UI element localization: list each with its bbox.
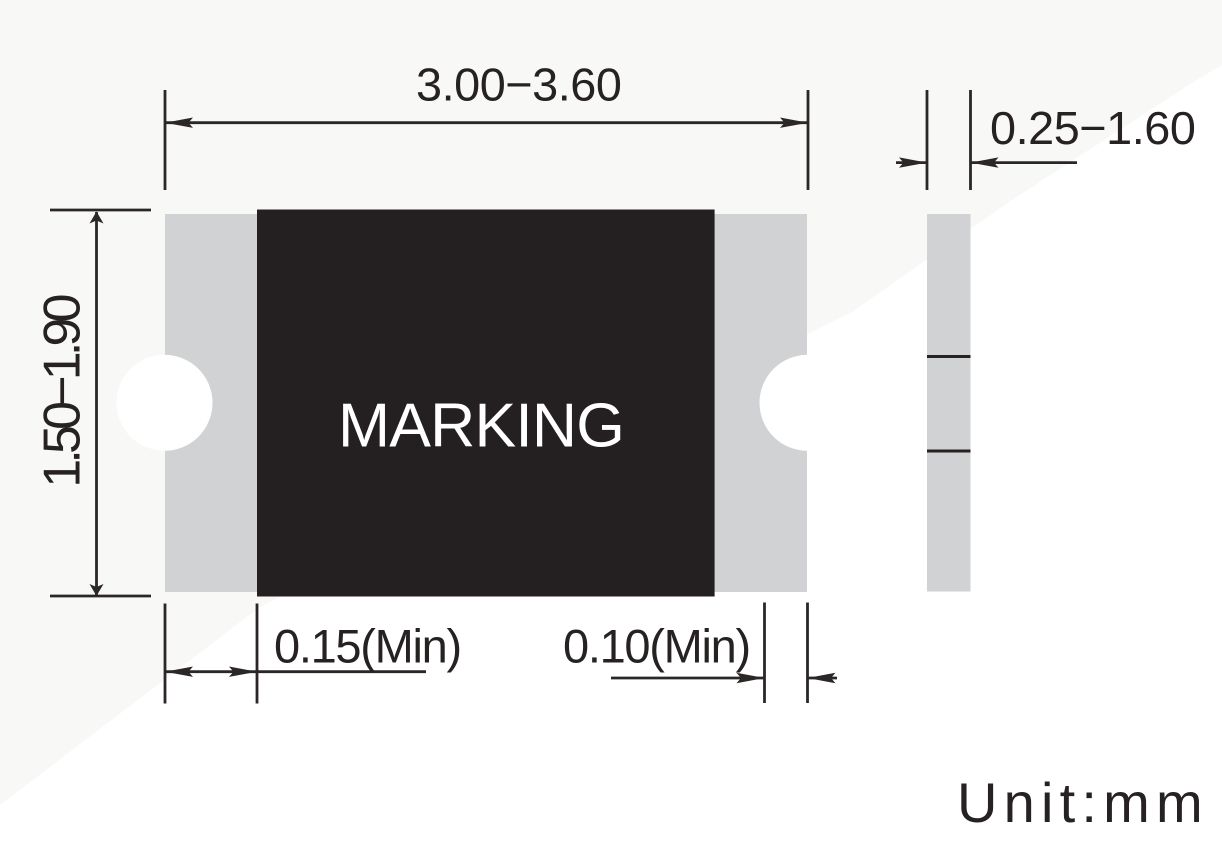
svg-text:0.25−1.60: 0.25−1.60 (990, 102, 1195, 154)
svg-text:0.15(Min): 0.15(Min) (274, 620, 461, 673)
svg-text:0.10(Min): 0.10(Min) (563, 620, 750, 673)
svg-text:1.50−1.90: 1.50−1.90 (33, 295, 91, 487)
svg-text:Unit:mm: Unit:mm (957, 771, 1209, 834)
svg-text:MARKING: MARKING (338, 391, 624, 461)
svg-text:3.00−3.60: 3.00−3.60 (416, 59, 621, 111)
